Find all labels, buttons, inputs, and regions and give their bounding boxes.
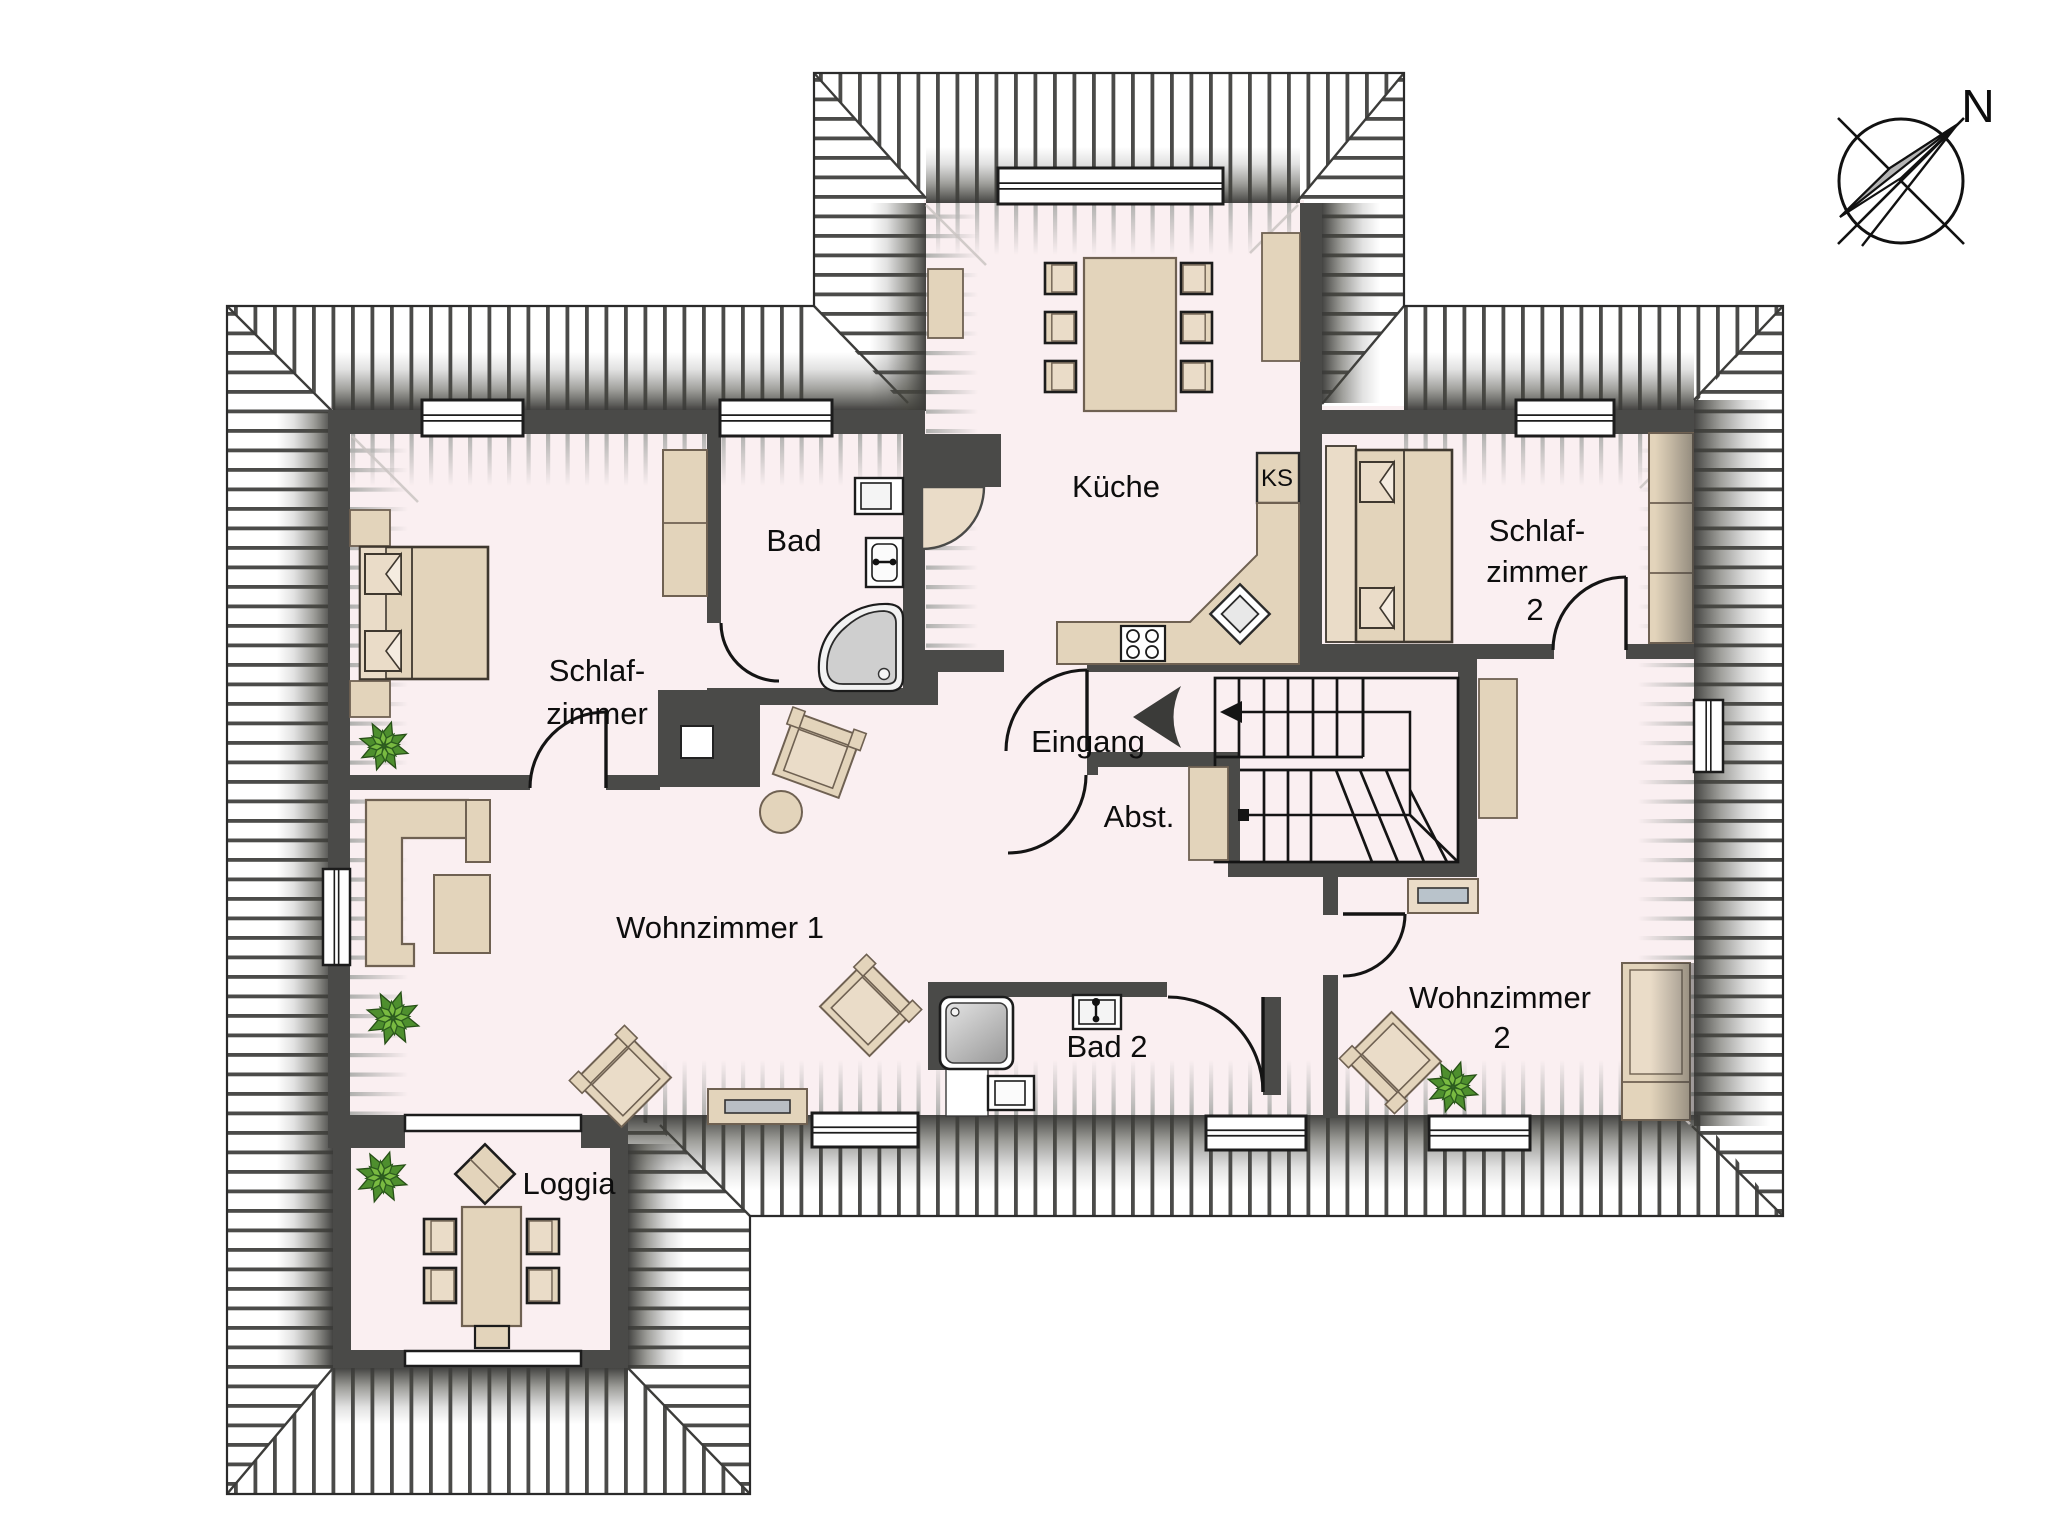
svg-text:Wohnzimmer: Wohnzimmer xyxy=(1409,980,1591,1015)
svg-text:N: N xyxy=(1961,80,1994,132)
svg-text:Wohnzimmer 1: Wohnzimmer 1 xyxy=(616,910,824,945)
svg-text:Schlaf-: Schlaf- xyxy=(549,653,645,688)
svg-text:Loggia: Loggia xyxy=(522,1166,616,1201)
svg-text:KS: KS xyxy=(1261,465,1293,492)
svg-text:Bad 2: Bad 2 xyxy=(1066,1029,1147,1064)
svg-text:zimmer: zimmer xyxy=(546,696,648,731)
svg-text:Bad: Bad xyxy=(766,523,821,558)
svg-text:Schlaf-: Schlaf- xyxy=(1489,513,1585,548)
svg-text:Küche: Küche xyxy=(1072,469,1160,504)
svg-text:Abst.: Abst. xyxy=(1104,799,1175,834)
svg-text:Eingang: Eingang xyxy=(1031,724,1145,759)
svg-text:2: 2 xyxy=(1493,1020,1510,1055)
svg-text:zimmer: zimmer xyxy=(1486,554,1588,589)
svg-text:2: 2 xyxy=(1526,592,1543,627)
